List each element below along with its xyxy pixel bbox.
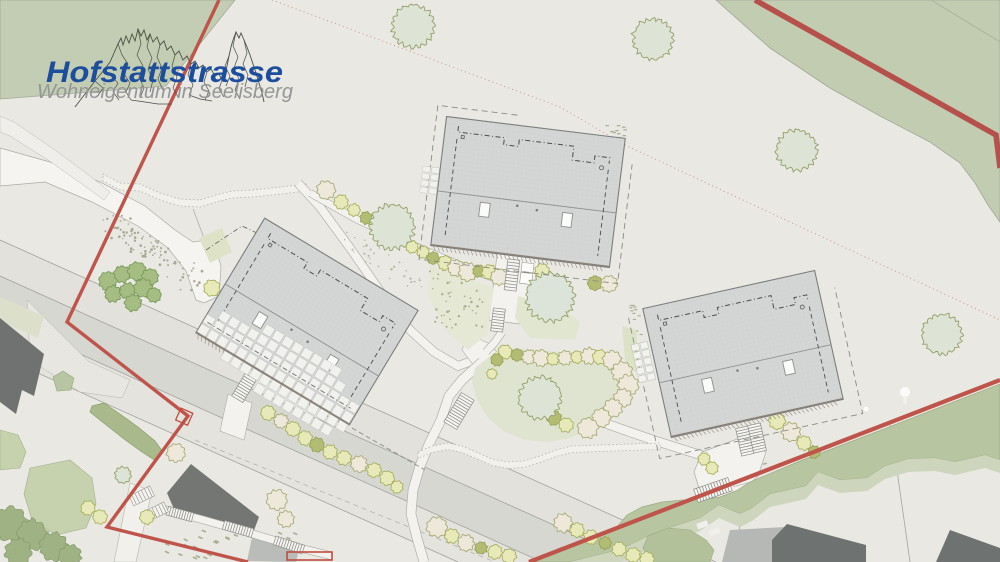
svg-text:Wohneigentum in Seelisberg: Wohneigentum in Seelisberg bbox=[37, 80, 294, 103]
